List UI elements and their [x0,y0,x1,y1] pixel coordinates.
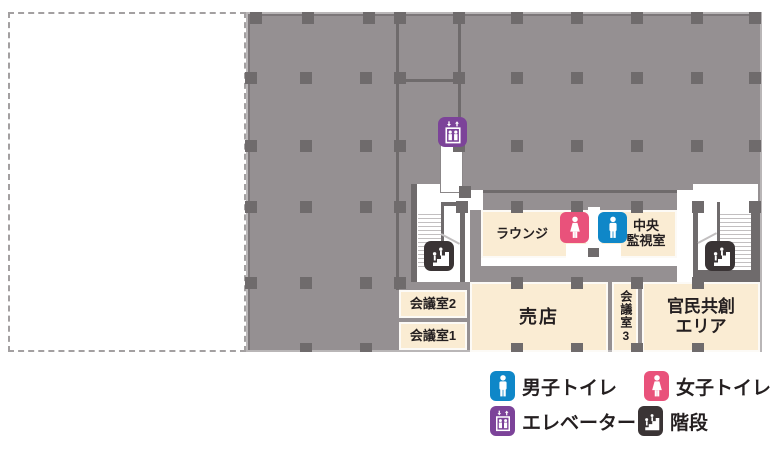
pillar [456,201,468,213]
room-shop: 売店 [470,282,608,352]
pillar [300,277,312,289]
room-label: 会議室2 [410,297,456,312]
room-label: 官民共創エリア [667,297,735,336]
pillar [245,277,257,289]
pillar [691,72,703,84]
female-toilet-icon [644,371,669,401]
pillar [511,201,523,213]
stairwell-wall [411,184,417,282]
male-toilet-icon [598,212,627,243]
room-label: 売店 [519,307,559,328]
stairs-icon [705,241,735,271]
pillar [245,201,257,213]
corridor-right [677,190,693,282]
pillar [631,140,643,152]
pillar [300,72,312,84]
pillar [360,343,372,352]
pillar [691,12,703,24]
room-meeting-3: 会議室3 [612,282,638,352]
pillar [360,277,372,289]
pillar [571,140,583,152]
pillar [631,343,643,352]
pillar [360,72,372,84]
pillar [302,12,314,24]
pillar [511,343,523,352]
pillar [692,277,704,289]
room-co-creation-area: 官民共創エリア [642,282,760,352]
pillar [300,140,312,152]
pillar [511,140,523,152]
legend-label: エレベーター [522,408,636,435]
pillar [300,201,312,213]
legend-item-stairs: 階段 [638,406,708,436]
room-label: 会議室3 [618,290,632,344]
pillar [749,12,761,24]
pillar [360,140,372,152]
pillar [692,343,704,352]
room-label: ラウンジ [483,227,561,242]
legend-label: 女子トイレ [676,373,770,400]
pillar [363,12,375,24]
pillar [511,72,523,84]
pillar [571,343,583,352]
pillar [245,140,257,152]
pillar [571,277,583,289]
stairs-icon [638,406,663,436]
stairs-icon [424,241,454,271]
pillar [631,72,643,84]
pillar [394,277,406,289]
pillar [571,12,583,24]
pillar [300,343,312,352]
pillar [394,12,406,24]
floor-map-page: { "map": { "rooms": { "lounge": {"label"… [0,0,770,449]
pillar [692,201,704,213]
elevator-icon [438,117,467,147]
legend-item-female-toilet: 女子トイレ [644,371,770,401]
pillar [691,140,703,152]
pillar [250,12,262,24]
pillar [360,201,372,213]
pillar [394,72,406,84]
empty-dashed-area [8,12,246,352]
pillar [631,12,643,24]
pillar [453,72,465,84]
pillar [459,186,471,198]
pillar [245,72,257,84]
pillar [394,201,406,213]
pillar [511,277,523,289]
pillar [394,140,406,152]
room-meeting-1: 会議室1 [399,322,467,350]
pillar [631,277,643,289]
elevator-icon [490,406,515,436]
pillar [749,201,761,213]
pillar [749,140,761,152]
pillar [571,72,583,84]
room-meeting-2: 会議室2 [399,290,467,318]
male-toilet-icon [490,371,515,401]
pillar [453,12,465,24]
pillar [511,12,523,24]
legend-item-male-toilet: 男子トイレ [490,371,617,401]
wall [483,190,677,193]
legend-label: 男子トイレ [522,373,617,400]
stairwell-wall [460,202,465,282]
pillar [749,72,761,84]
wall [588,248,599,257]
female-toilet-icon [560,212,589,243]
pillar [631,201,643,213]
room-label: 会議室1 [410,329,456,344]
legend-item-elevator: エレベーター [490,406,636,436]
legend-label: 階段 [670,408,708,435]
